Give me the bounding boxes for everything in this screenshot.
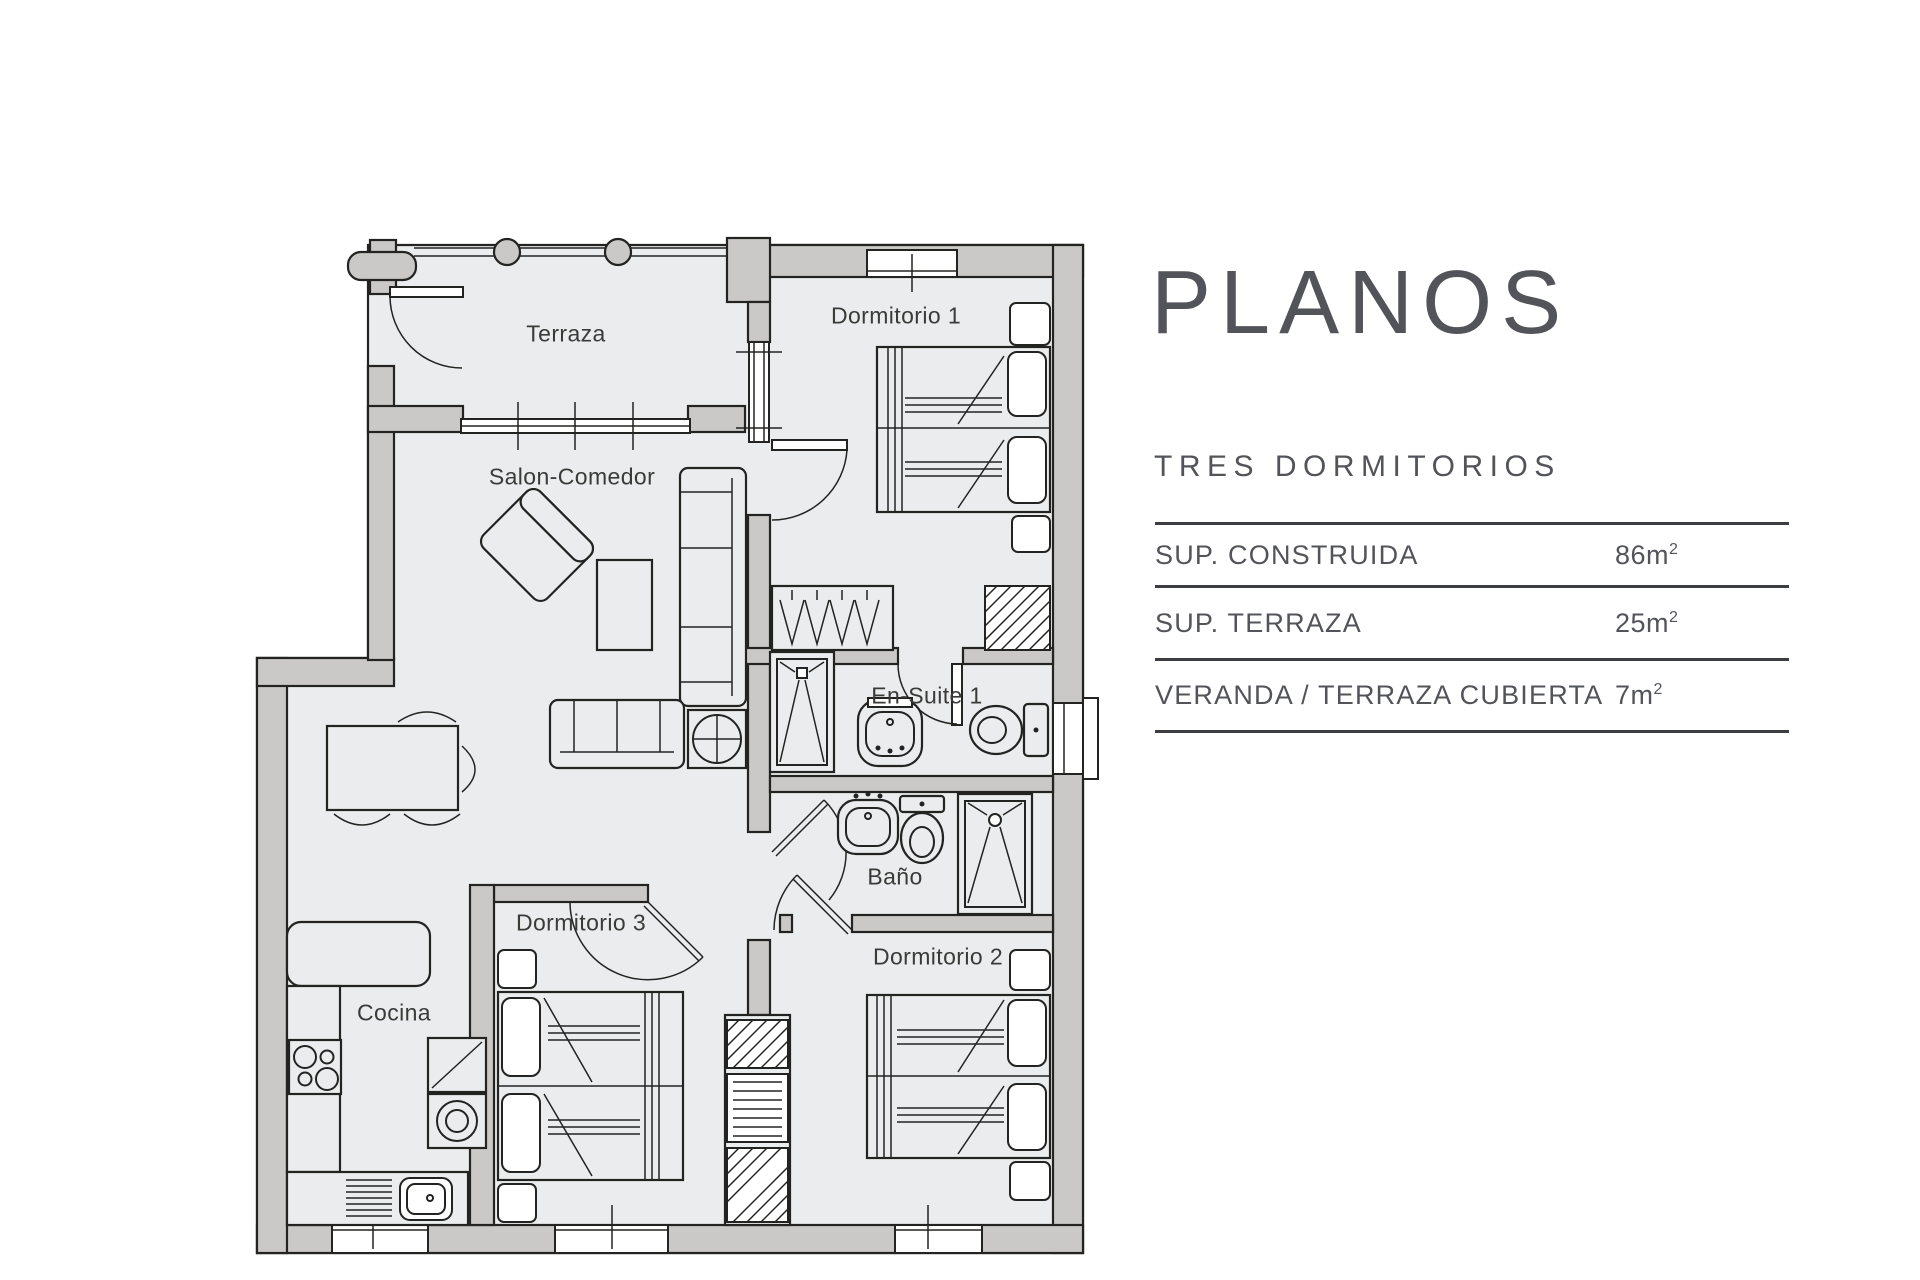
- room-label-salon-comedor: Salon-Comedor: [489, 464, 655, 491]
- service-shafts: [725, 1015, 790, 1225]
- room-label-cocina: Cocina: [357, 1000, 431, 1027]
- table-row: SUP. TERRAZA 25m2: [1155, 585, 1789, 658]
- plan-subtitle: TRES DORMITORIOS: [1154, 450, 1561, 484]
- room-label-terraza: Terraza: [526, 321, 606, 348]
- room-label-en-suite-1: En-Suite 1: [871, 683, 982, 710]
- oven: [428, 1038, 486, 1092]
- area-row-label: SUP. TERRAZA: [1155, 608, 1362, 639]
- area-row-value: 25m2: [1615, 608, 1678, 639]
- hob: [289, 1040, 341, 1094]
- wardrobe: [772, 586, 893, 650]
- toilet-ensuite: [970, 704, 1048, 756]
- room-label-dormitorio-1: Dormitorio 1: [831, 303, 961, 330]
- toilet-bano: [900, 796, 944, 863]
- area-row-value: 7m2: [1615, 680, 1663, 711]
- area-table: SUP. CONSTRUIDA 86m2 SUP. TERRAZA 25m2 V…: [1155, 522, 1789, 733]
- area-row-value: 86m2: [1615, 540, 1678, 571]
- shower-ensuite: [770, 652, 834, 772]
- page-title: PLANOS: [1151, 258, 1570, 348]
- table-row: SUP. CONSTRUIDA 86m2: [1155, 522, 1789, 585]
- washing-machine: [428, 1094, 486, 1148]
- room-label-dormitorio-2: Dormitorio 2: [873, 944, 1003, 971]
- table-row: VERANDA / TERRAZA CUBIERTA 7m2: [1155, 658, 1789, 730]
- room-label-dormitorio-3: Dormitorio 3: [516, 910, 646, 937]
- floor-plan-page: { "colors": { "wall": "#cac9c7", "floor"…: [0, 0, 1920, 1280]
- hatched-shaft: [985, 586, 1050, 650]
- side-table: [688, 710, 746, 768]
- area-row-label: VERANDA / TERRAZA CUBIERTA: [1155, 680, 1603, 711]
- room-label-bano: Baño: [867, 864, 922, 891]
- area-row-label: SUP. CONSTRUIDA: [1155, 540, 1419, 571]
- coffee-table: [597, 560, 652, 650]
- dining-table: [327, 712, 475, 825]
- shower-bano: [958, 794, 1032, 914]
